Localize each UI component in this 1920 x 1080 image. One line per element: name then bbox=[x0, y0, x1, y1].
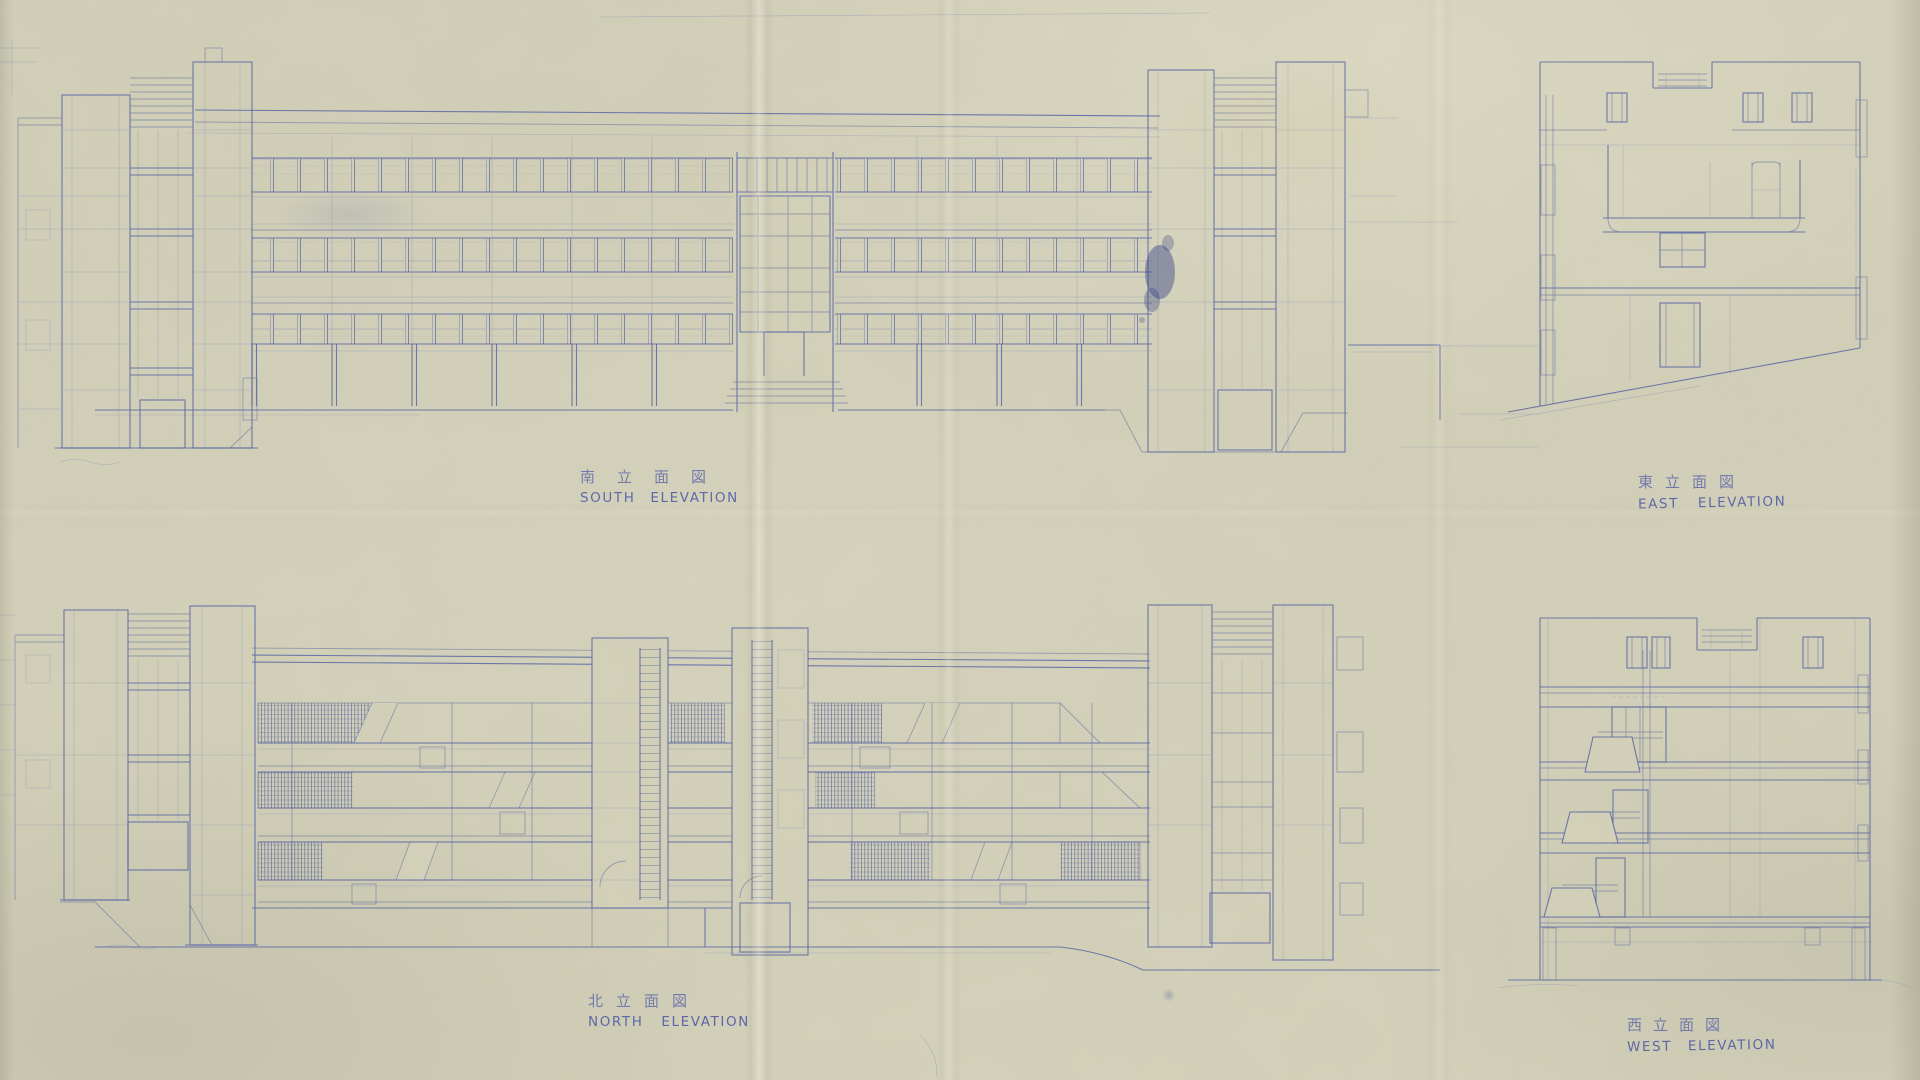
south-center-bay bbox=[725, 152, 848, 414]
north-entrance-core bbox=[732, 628, 808, 955]
west-elevation-drawing bbox=[1480, 590, 1920, 1080]
north-stair-core-left bbox=[592, 638, 668, 947]
caption-west-elevation: 西立面図 WEST ELEVATION bbox=[1627, 1014, 1776, 1054]
south-elevation-drawing bbox=[0, 0, 1460, 478]
east-block bbox=[1400, 62, 1867, 447]
paper-fold-crease-horizontal bbox=[0, 502, 1920, 524]
caption-west-english: WEST ELEVATION bbox=[1627, 1037, 1777, 1056]
caption-south-kanji: 南立面図 bbox=[580, 466, 739, 487]
blueprint-sheet: 南立面図 SOUTH ELEVATION 東立面図 EAST ELEVATION… bbox=[0, 0, 1920, 1080]
east-elevation-drawing bbox=[1400, 30, 1920, 470]
caption-north-english: NORTH ELEVATION bbox=[588, 1014, 750, 1030]
north-right-stair-tower bbox=[1148, 605, 1363, 960]
west-base bbox=[1498, 928, 1912, 988]
north-left-stair-tower bbox=[0, 606, 258, 949]
caption-east-kanji: 東立面図 bbox=[1638, 471, 1786, 492]
caption-east-elevation: 東立面図 EAST ELEVATION bbox=[1638, 471, 1786, 511]
caption-north-elevation: 北立面図 NORTH ELEVATION bbox=[588, 990, 750, 1030]
west-block bbox=[1540, 618, 1870, 980]
caption-south-english: SOUTH ELEVATION bbox=[580, 490, 739, 506]
caption-east-english: EAST ELEVATION bbox=[1638, 493, 1787, 512]
north-slab bbox=[252, 648, 1150, 947]
caption-west-kanji: 西立面図 bbox=[1627, 1014, 1776, 1035]
caption-south-elevation: 南立面図 SOUTH ELEVATION bbox=[580, 466, 739, 506]
west-stair-balconies bbox=[1544, 697, 1666, 917]
south-slab bbox=[95, 110, 1160, 415]
caption-north-kanji: 北立面図 bbox=[588, 990, 750, 1011]
sheet-margin-marks bbox=[0, 13, 1210, 95]
